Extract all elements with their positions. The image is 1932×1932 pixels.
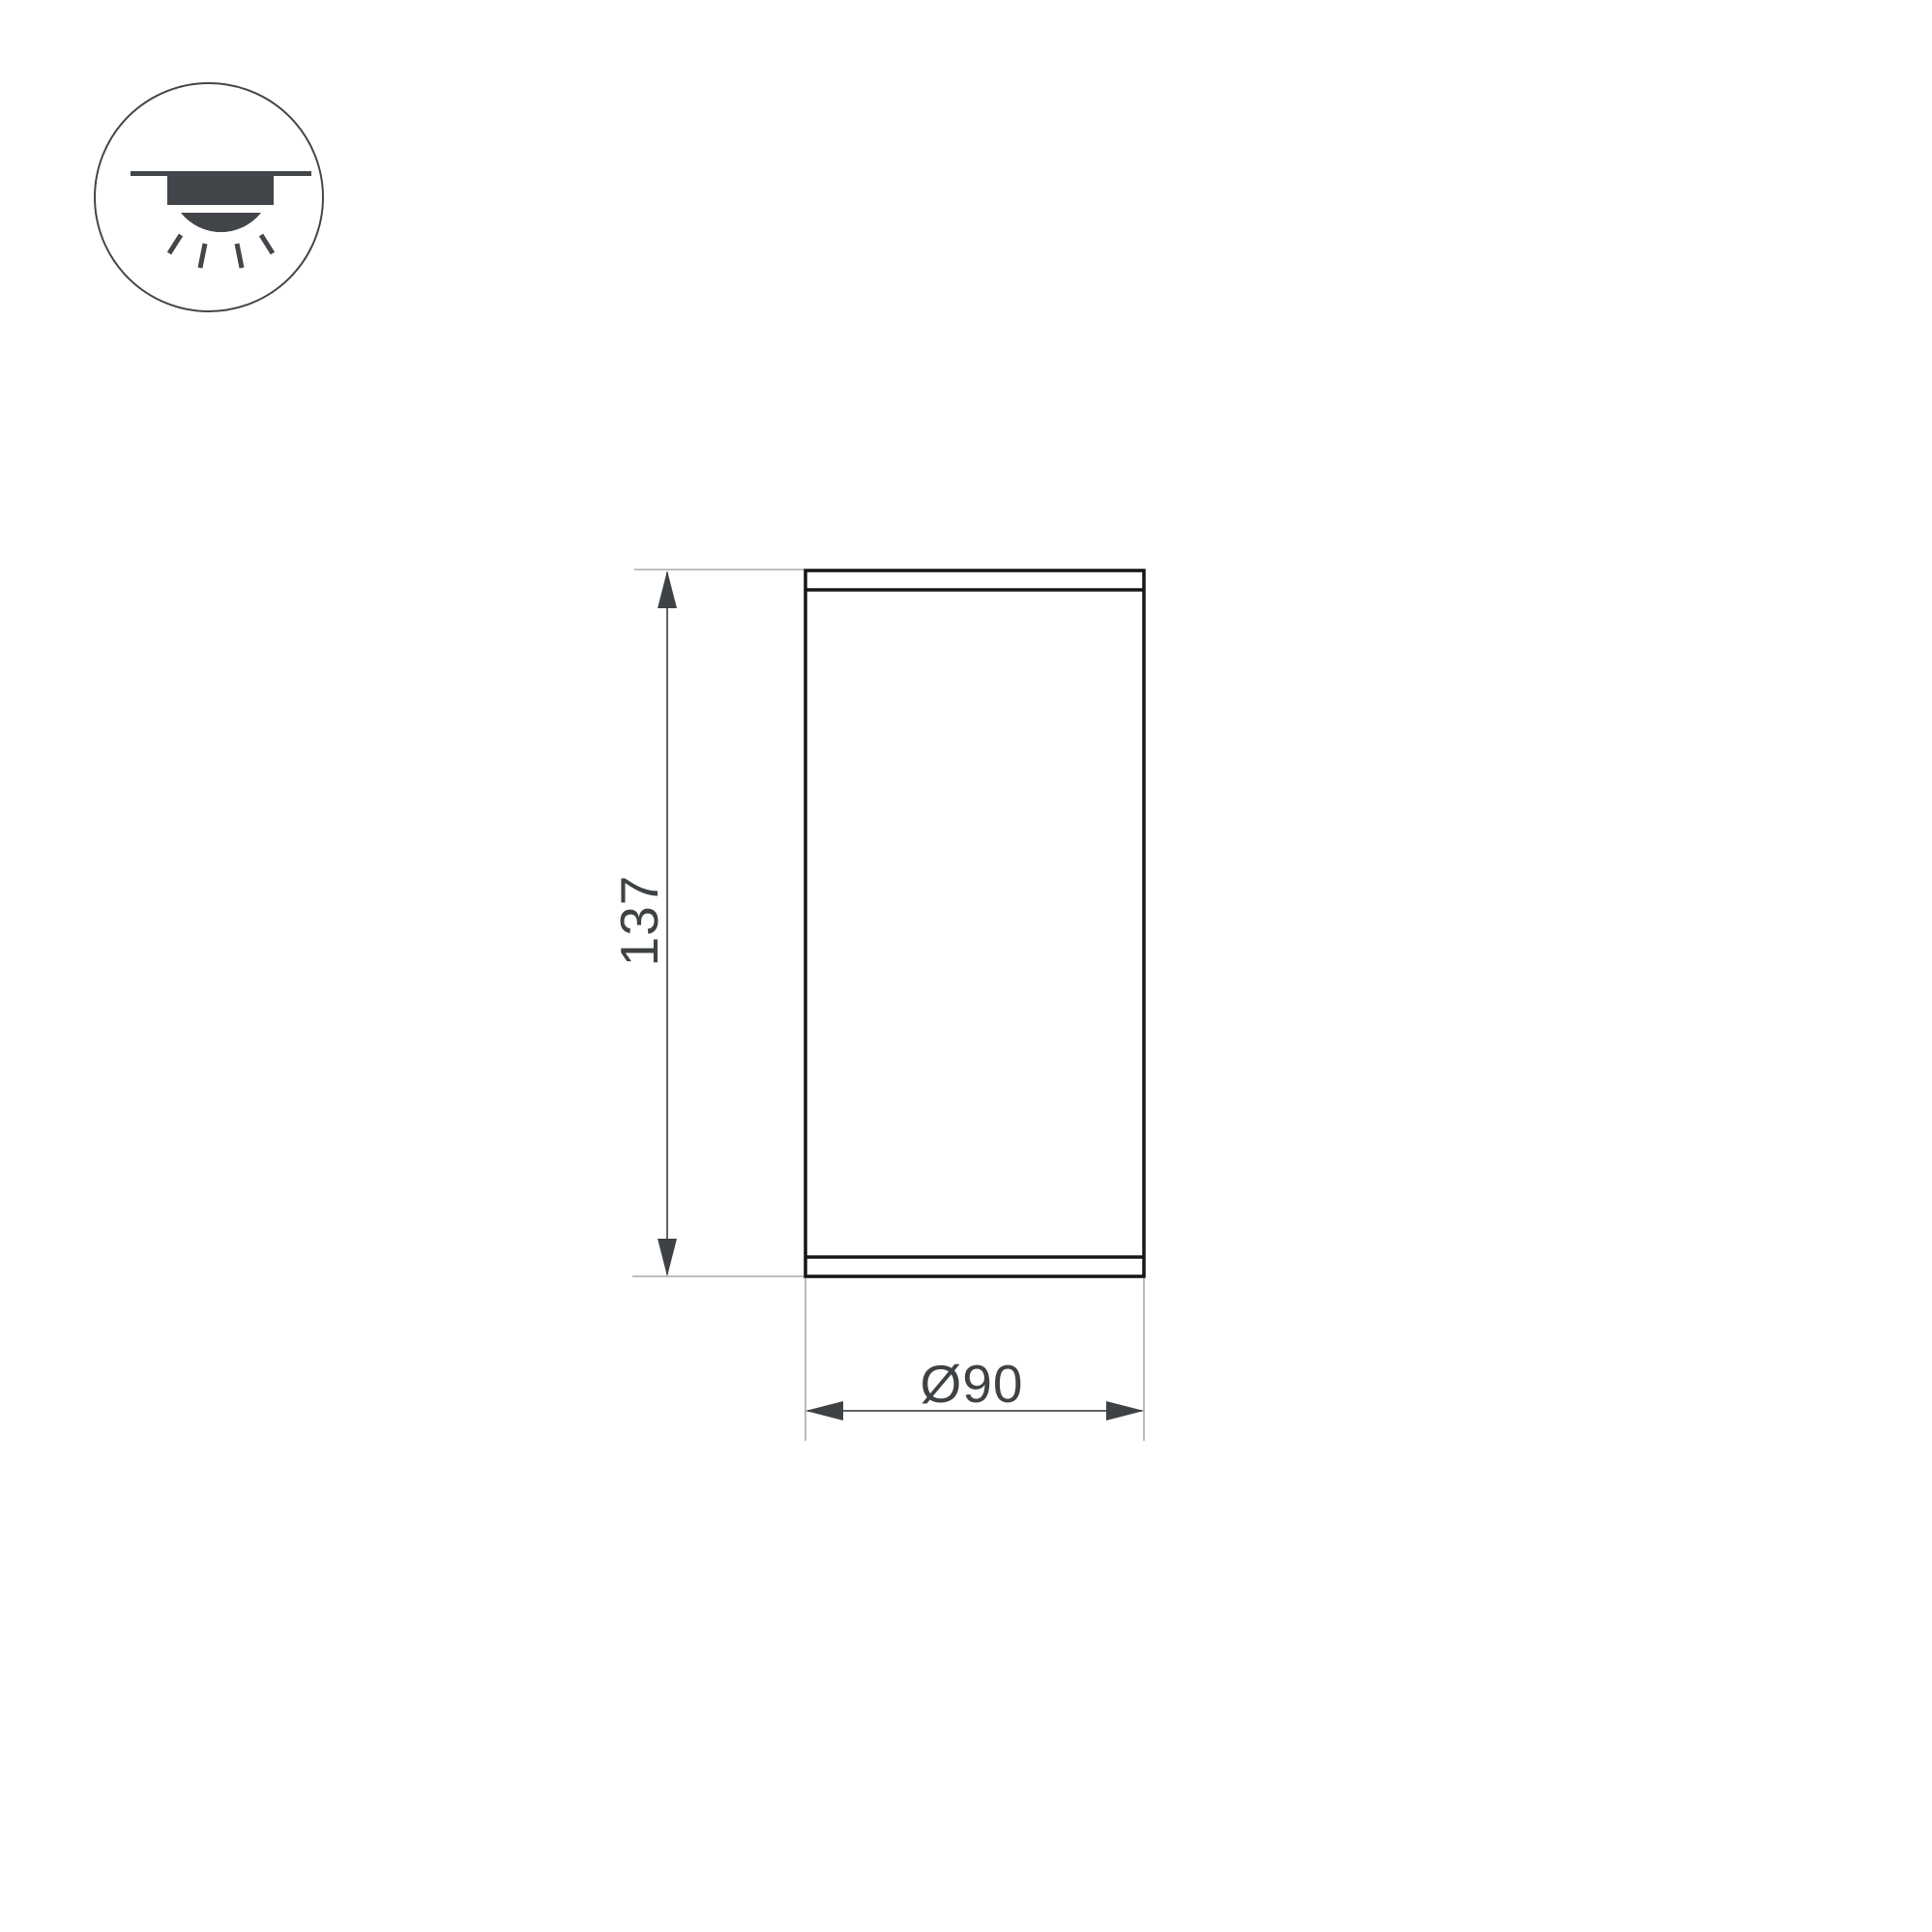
arrow-left-icon [805,1401,843,1420]
height-dimension: 137 [609,571,677,1276]
arrow-up-icon [658,571,677,608]
light-ray-icon [169,235,181,253]
diameter-dimension: Ø90 [805,1354,1144,1420]
fixture-body [167,171,274,205]
light-ray-icon [261,235,273,253]
arrow-right-icon [1106,1401,1144,1420]
fixture-cylinder-outline [805,571,1144,1276]
technical-drawing-canvas: 137 Ø90 [0,0,1932,1932]
height-dimension-label: 137 [609,875,669,967]
fixture-dimension-drawing: 137 Ø90 [0,0,1932,1932]
diameter-dimension-label: Ø90 [921,1354,1024,1414]
surface-mounted-ceiling-downlight-icon [95,83,323,311]
light-ray-icon [237,244,242,268]
arrow-down-icon [658,1239,677,1276]
light-dome [181,213,261,232]
fixture-side-view [805,571,1144,1276]
light-ray-icon [200,244,205,268]
